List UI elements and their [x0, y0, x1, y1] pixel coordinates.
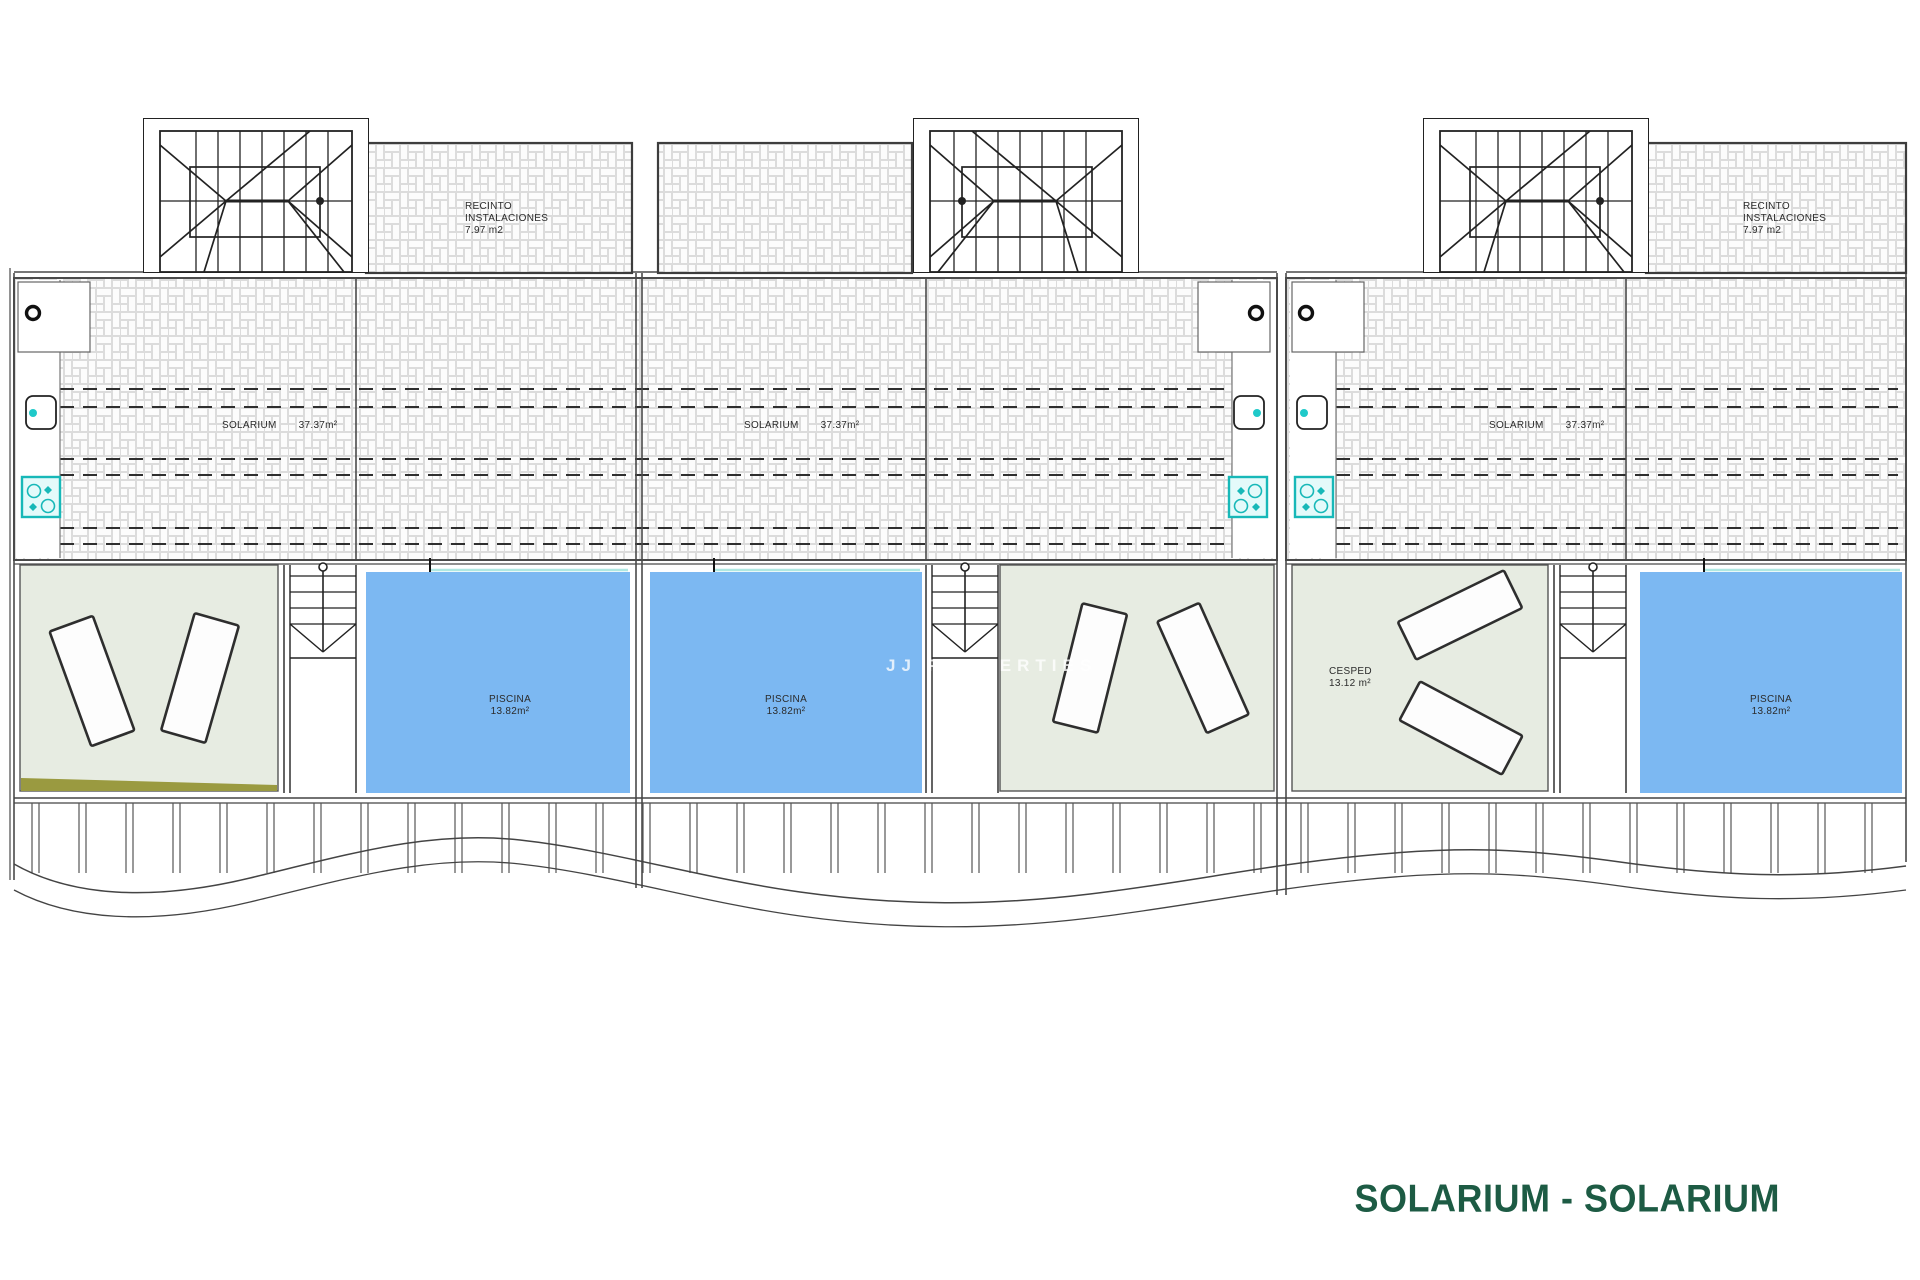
wash-fixture-icon	[1297, 396, 1327, 429]
room-label-area: 37.37m²	[1566, 420, 1605, 432]
floor-plan-drawing	[0, 0, 1920, 1280]
bbq-grill-icon	[1295, 477, 1333, 517]
room-label-area: 13.12 m²	[1329, 678, 1372, 690]
room-label-name: SOLARIUM	[1489, 420, 1544, 432]
room-label-area: 13.82m²	[726, 706, 846, 718]
room-label-line: RECINTO	[465, 201, 548, 213]
room-label-piscina-2: PISCINA 13.82m²	[726, 694, 846, 718]
room-label-name: PISCINA	[726, 694, 846, 706]
room-label-line: INSTALACIONES	[465, 213, 548, 225]
floor-plan: RECINTO INSTALACIONES 7.97 m2 RECINTO IN…	[0, 0, 1920, 1280]
terrace-fence-band	[14, 798, 1906, 927]
staircase-down-1	[284, 563, 356, 793]
staircase-top-1	[144, 119, 369, 273]
sheet-title: SOLARIUM - SOLARIUM	[1330, 1176, 1780, 1221]
solarium-deck-right-building	[1286, 272, 1906, 564]
watermark: JJ PROPERTIES	[886, 656, 1097, 676]
room-label-piscina-1: PISCINA 13.82m²	[450, 694, 570, 718]
bbq-grill-icon	[1229, 477, 1267, 517]
wash-fixture-icon	[26, 396, 56, 429]
room-label-solarium-3: SOLARIUM 37.37m²	[1489, 420, 1604, 432]
room-label-line: 7.97 m2	[1743, 225, 1826, 237]
staircase-down-2	[926, 563, 998, 793]
room-label-recinto-1: RECINTO INSTALACIONES 7.97 m2	[465, 201, 548, 237]
room-label-area: 37.37m²	[821, 420, 860, 432]
pool-unit-1	[366, 558, 630, 793]
room-label-name: SOLARIUM	[744, 420, 799, 432]
room-label-solarium-1: SOLARIUM 37.37m²	[222, 420, 337, 432]
room-label-name: PISCINA	[450, 694, 570, 706]
room-label-name: SOLARIUM	[222, 420, 277, 432]
pool-unit-3	[1640, 558, 1902, 793]
staircase-top-2	[914, 119, 1139, 273]
room-label-area: 13.82m²	[450, 706, 570, 718]
room-label-area: 13.82m²	[1711, 706, 1831, 718]
room-label-line: INSTALACIONES	[1743, 213, 1826, 225]
room-label-piscina-3: PISCINA 13.82m²	[1711, 694, 1831, 718]
staircase-top-3	[1424, 119, 1649, 273]
staircase-down-3	[1554, 563, 1626, 793]
pool-unit-2	[650, 558, 922, 793]
room-label-name: CESPED	[1329, 666, 1372, 678]
wash-fixture-icon	[1234, 396, 1264, 429]
room-label-area: 37.37m²	[299, 420, 338, 432]
lawn-unit-1	[20, 565, 278, 791]
room-label-recinto-2: RECINTO INSTALACIONES 7.97 m2	[1743, 201, 1826, 237]
room-label-line: RECINTO	[1743, 201, 1826, 213]
room-instalaciones-middle	[658, 143, 912, 273]
room-label-cesped: CESPED 13.12 m²	[1329, 666, 1372, 690]
counter-sink-icon	[18, 282, 90, 352]
room-label-line: 7.97 m2	[465, 225, 548, 237]
bbq-grill-icon	[22, 477, 60, 517]
room-label-name: PISCINA	[1711, 694, 1831, 706]
counter-sink-icon	[1292, 282, 1364, 352]
counter-sink-icon	[1198, 282, 1270, 352]
room-label-solarium-2: SOLARIUM 37.37m²	[744, 420, 859, 432]
